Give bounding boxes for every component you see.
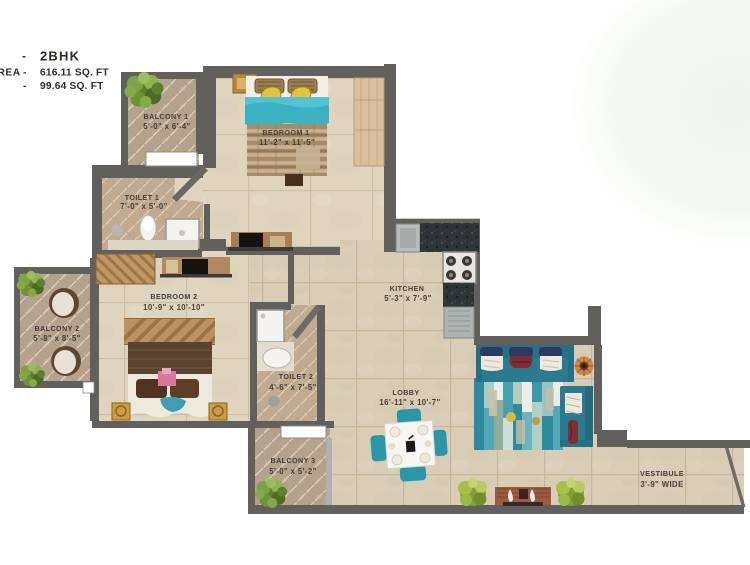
svg-text:10'-9" x 10'-10": 10'-9" x 10'-10" bbox=[143, 303, 205, 312]
svg-text:-: - bbox=[23, 80, 27, 92]
svg-text:2BHK: 2BHK bbox=[40, 49, 80, 64]
svg-text:5'-0" x 5'-2": 5'-0" x 5'-2" bbox=[269, 467, 317, 476]
svg-text:5'-3" x 7'-9": 5'-3" x 7'-9" bbox=[384, 294, 432, 303]
svg-text:LOBBY: LOBBY bbox=[392, 388, 419, 397]
svg-text:99.64 SQ. FT: 99.64 SQ. FT bbox=[40, 81, 104, 92]
svg-text:616.11 SQ. FT: 616.11 SQ. FT bbox=[40, 68, 109, 79]
svg-text:TOILET 1: TOILET 1 bbox=[125, 193, 160, 202]
svg-text:3'-9" WIDE: 3'-9" WIDE bbox=[640, 480, 683, 489]
svg-text:TOILET 2: TOILET 2 bbox=[279, 372, 314, 381]
svg-text:-: - bbox=[23, 67, 27, 79]
svg-text:VESTIBULE: VESTIBULE bbox=[640, 469, 684, 478]
svg-text:11'-2" x 11'-5": 11'-2" x 11'-5" bbox=[259, 138, 315, 147]
svg-text:AREA: AREA bbox=[0, 68, 21, 79]
svg-text:BALCONY 1: BALCONY 1 bbox=[143, 112, 188, 121]
svg-text:-: - bbox=[22, 49, 26, 63]
svg-text:BALCONY 2: BALCONY 2 bbox=[34, 324, 79, 333]
svg-text:BALCONY 3: BALCONY 3 bbox=[270, 456, 315, 465]
svg-text:5'-8" x 8'-5": 5'-8" x 8'-5" bbox=[33, 334, 81, 343]
svg-text:BEDROOM 2: BEDROOM 2 bbox=[150, 292, 197, 301]
svg-text:BEDROOM 1: BEDROOM 1 bbox=[262, 128, 309, 137]
svg-text:KITCHEN: KITCHEN bbox=[390, 284, 425, 293]
svg-text:16'-11" x 10'-7": 16'-11" x 10'-7" bbox=[379, 398, 440, 407]
svg-text:7'-0" x 5'-0": 7'-0" x 5'-0" bbox=[120, 202, 168, 211]
svg-text:5'-0" x 6'-4": 5'-0" x 6'-4" bbox=[143, 122, 191, 131]
svg-text:4'-6" x 7'-5": 4'-6" x 7'-5" bbox=[269, 383, 317, 392]
